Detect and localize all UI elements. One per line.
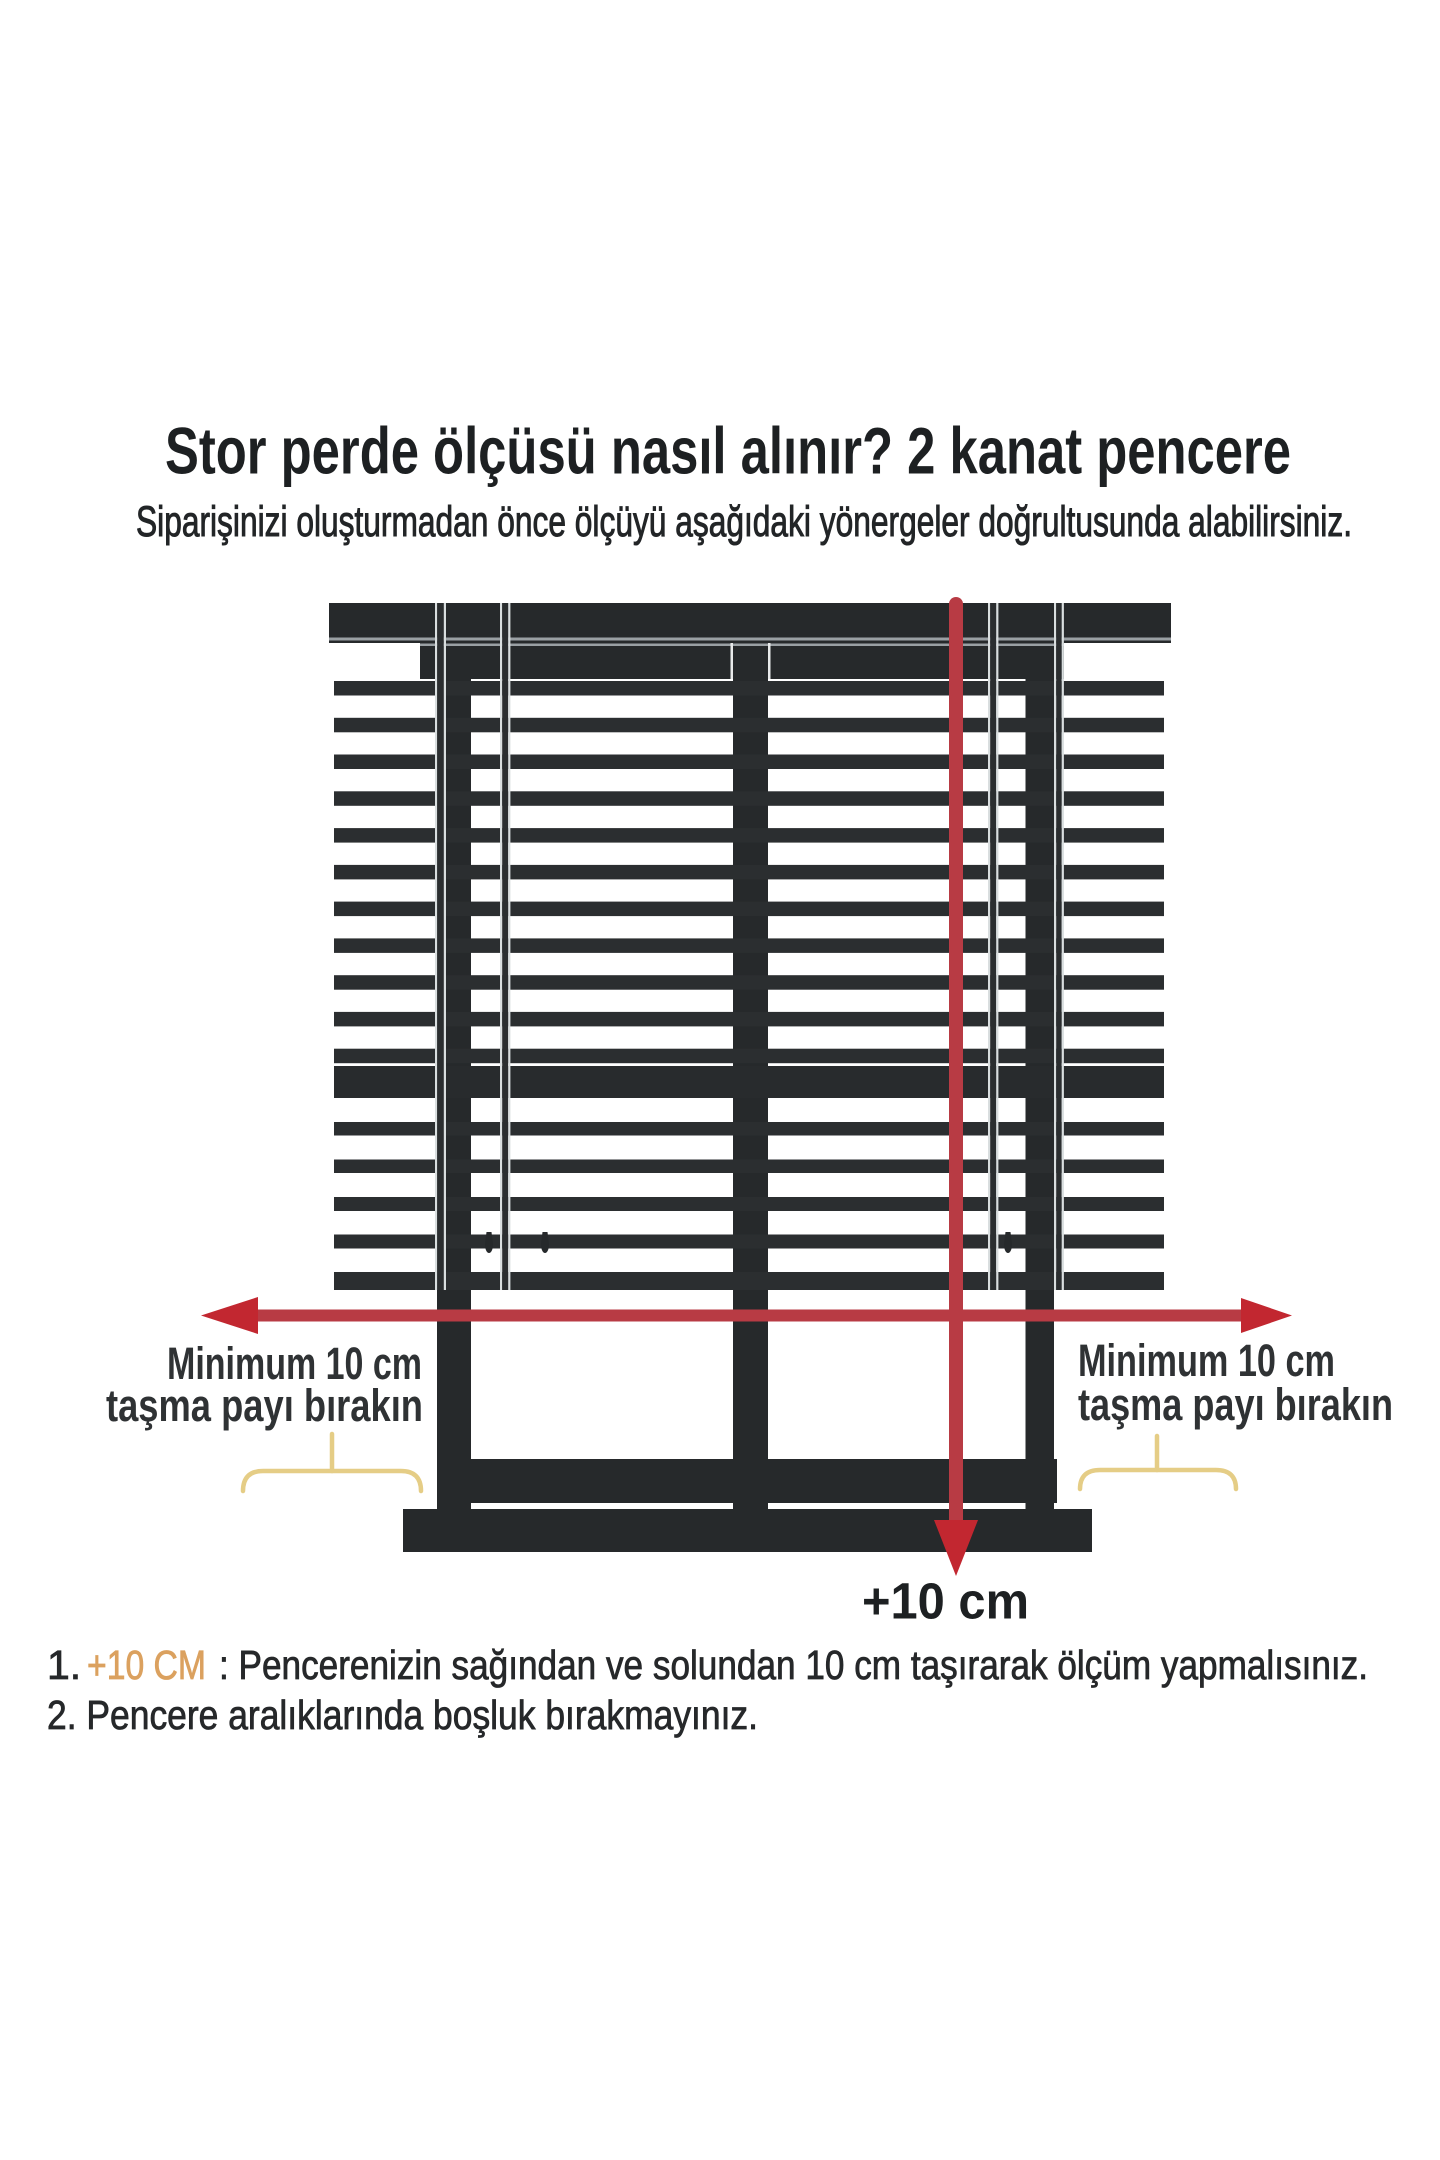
svg-text:1.: 1. bbox=[47, 1642, 81, 1688]
svg-text:taşma payı bırakın: taşma payı bırakın bbox=[1078, 1379, 1393, 1430]
svg-text:2. Pencere aralıklarında boşlu: 2. Pencere aralıklarında boşluk bırakmay… bbox=[47, 1692, 758, 1738]
svg-text:Stor perde ölçüsü nasıl alınır: Stor perde ölçüsü nasıl alınır? 2 kanat … bbox=[165, 414, 1291, 488]
svg-text:Siparişinizi oluşturmadan önce: Siparişinizi oluşturmadan önce ölçüyü aş… bbox=[136, 498, 1352, 546]
svg-text:: Pencerenizin sağından ve sol: : Pencerenizin sağından ve solundan 10 c… bbox=[219, 1642, 1368, 1688]
svg-text:+10 cm: +10 cm bbox=[862, 1573, 1029, 1630]
svg-text:+10 CM: +10 CM bbox=[87, 1642, 206, 1688]
svg-text:taşma payı bırakın: taşma payı bırakın bbox=[106, 1380, 423, 1431]
